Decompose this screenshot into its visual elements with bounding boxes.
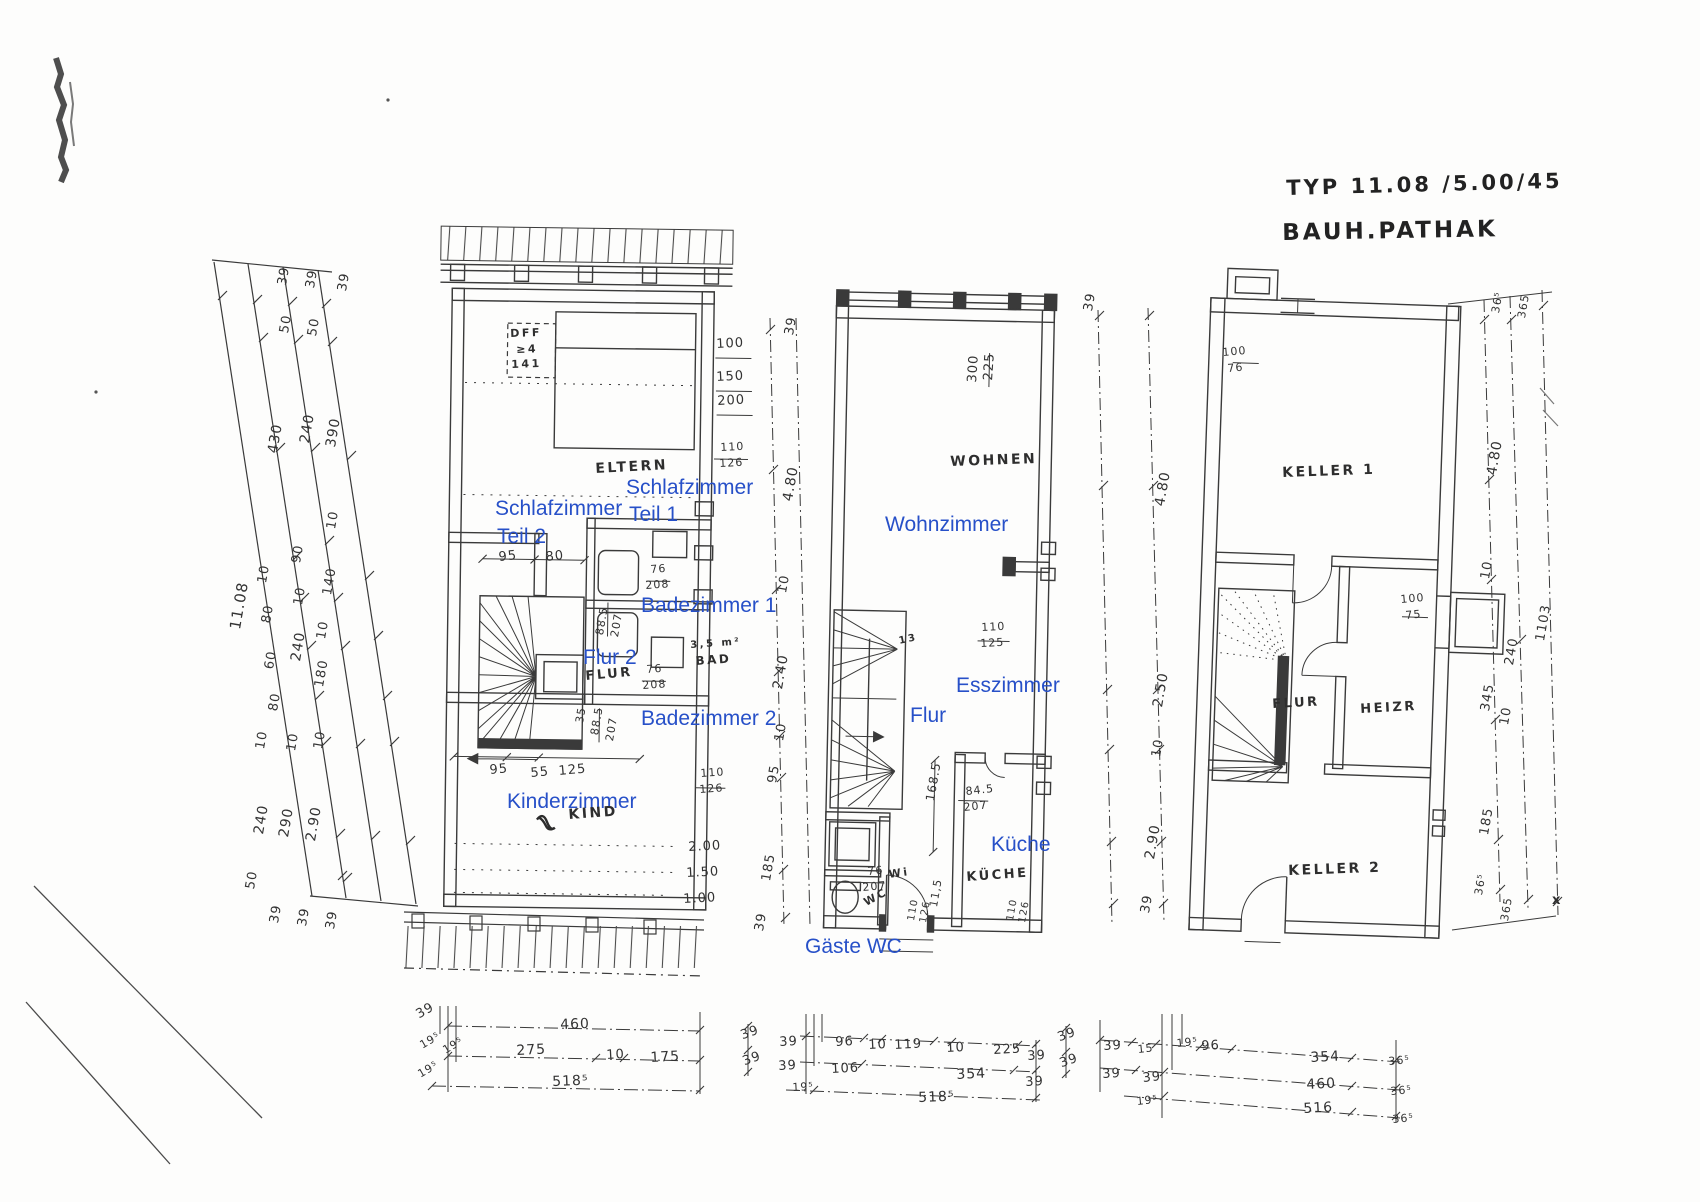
dimension-label: 518⁵ [552, 1074, 589, 1089]
handwritten-label: WOHNEN [950, 452, 1037, 469]
dimension-label: 110 [700, 766, 725, 779]
dimension-label: 76 [1227, 362, 1244, 374]
blue-room-annotation: Schlafzimmer [495, 498, 622, 519]
dimension-label: 10 [254, 730, 270, 751]
dimension-label: 2.50 [1151, 671, 1171, 708]
dimension-label: 365 [1516, 293, 1531, 319]
dimension-label: 150 [716, 370, 744, 384]
handwritten-label: Wi [888, 866, 910, 880]
dimension-label: 84.5 [965, 783, 994, 797]
dimension-label: 168.5 [924, 761, 943, 802]
blue-room-annotation: Badezimmer 1 [641, 595, 776, 616]
dimension-label: 50 [244, 870, 260, 891]
dimension-label: 55 [530, 765, 550, 780]
dimension-label: 39 [276, 266, 292, 287]
dimension-label: 80 [545, 549, 565, 564]
dimension-label: 39 [304, 269, 320, 290]
dimension-label: 110 [981, 621, 1006, 633]
dimension-label: 2.90 [1143, 823, 1163, 860]
dimension-label: 390 [324, 417, 343, 449]
dimension-label: 19⁵ [1176, 1036, 1198, 1049]
dimension-label: 275 [516, 1042, 546, 1058]
handwritten-label: DFF [510, 327, 542, 339]
dimension-label: 39 [779, 1035, 798, 1049]
dimension-label: 76 [650, 563, 667, 575]
dimension-label: 39 [753, 912, 769, 933]
dimension-label: 39 [778, 1059, 797, 1073]
dimension-label: 125 [980, 637, 1005, 649]
dimension-label: 1103 [1534, 603, 1553, 642]
blue-room-annotation: Wohnzimmer [885, 514, 1008, 535]
dimension-label: 11,5 [928, 878, 944, 908]
dimension-label: 290 [277, 807, 296, 839]
dimension-label: 207 [963, 799, 988, 812]
blue-room-annotation: Gäste WC [805, 936, 902, 957]
dimension-label: 39 [1103, 1039, 1122, 1053]
dimension-label: 2.90 [304, 805, 324, 842]
dimension-label: 10 [776, 574, 792, 595]
dimension-label: 126 [719, 457, 744, 469]
dimension-label: 460 [1306, 1076, 1336, 1092]
dimension-label: 4.80 [781, 465, 801, 502]
dimension-label: 39 [783, 316, 799, 337]
dimension-label: 175 [650, 1049, 680, 1065]
blue-room-annotation: Küche [991, 834, 1051, 855]
dimension-label: 345 [1479, 683, 1497, 713]
dimension-label: 95 [498, 549, 518, 564]
dimension-label: 10 [315, 620, 331, 641]
dimension-label: 10 [256, 564, 272, 585]
dimension-label: 95 [766, 764, 782, 785]
dimension-label: 106 [831, 1062, 859, 1076]
dimension-label: 35 [574, 706, 588, 724]
dimension-label: 126 [699, 782, 724, 795]
handwritten-label: 13 [898, 633, 919, 647]
dimension-label: 50 [278, 314, 294, 335]
dimension-label: 10 [606, 1048, 625, 1062]
handwritten-label: KÜCHE [966, 867, 1029, 884]
dimension-label: 39 [1056, 1026, 1078, 1045]
handwritten-label: HEIZR [1360, 700, 1417, 716]
dimension-label: 19⁵ [1136, 1094, 1158, 1107]
dimension-label: 207 [862, 880, 887, 893]
dimension-label: 516 [1303, 1100, 1333, 1116]
dimension-label: 60 [263, 650, 279, 671]
dimension-label: 100 [1400, 592, 1425, 605]
dimension-label: 80 [267, 692, 283, 713]
dimension-label: 39 [1082, 292, 1098, 313]
dimension-label: 140 [321, 567, 339, 597]
dimension-label: 208 [642, 678, 667, 691]
dimension-label: 36⁵ [1473, 873, 1488, 896]
dimension-label: 460 [560, 1017, 590, 1032]
handwritten-label: FLUR [585, 666, 633, 683]
handwritten-label: KELLER 2 [1288, 861, 1382, 878]
dimension-label: 207 [604, 716, 619, 742]
dimension-label: 39 [336, 272, 352, 293]
dimension-label: 39 [296, 907, 312, 928]
dimension-label: 2.40 [771, 653, 791, 690]
dimension-label: 2.00 [688, 839, 722, 854]
dimension-label: 39 [1139, 894, 1155, 915]
dimension-label: 39 [741, 1050, 763, 1069]
dimension-label: 19⁵ [441, 1035, 465, 1055]
dimension-label: 365 [1499, 896, 1514, 922]
dimension-label: 75 [1405, 609, 1422, 621]
blue-room-annotation: Flur [910, 705, 946, 726]
dimension-label: 10 [773, 722, 789, 743]
scanned-floorplan-sheet: TYP 11.08 /5.00/45 BAUH.PATHAK Schlafzim… [0, 0, 1700, 1202]
blue-room-annotation: Esszimmer [956, 675, 1060, 696]
dimension-label: 430 [266, 423, 285, 455]
dimension-label: 10 [1479, 560, 1495, 581]
dimension-label: 10 [325, 510, 341, 531]
dimension-label: 39 [414, 1001, 437, 1022]
dimension-label: 36⁵ [1490, 291, 1505, 314]
handwritten-label: KIND [568, 805, 618, 822]
dimension-label: 100 [716, 337, 744, 351]
dimension-label: 50 [306, 317, 322, 338]
dimension-label: 354 [1310, 1049, 1340, 1065]
dimension-label: 11.08 [228, 581, 251, 631]
dimension-label: 354 [956, 1066, 986, 1082]
dimension-label: 36⁵ [1390, 1084, 1412, 1097]
dimension-label: 39 [324, 910, 340, 931]
dimension-label: 185 [760, 853, 778, 883]
handwritten-label: FLUR [1272, 696, 1320, 711]
dimension-label: 96 [1201, 1039, 1220, 1053]
dimension-label: 76 [646, 663, 663, 675]
dimension-label: 225 [982, 352, 997, 381]
dimension-label: 19⁵ [792, 1081, 814, 1093]
dimension-label: 225 [993, 1043, 1021, 1057]
dimension-label: 240 [298, 413, 317, 445]
dimension-label: 125 [558, 763, 587, 778]
dimension-label: 88.5 [589, 706, 605, 736]
handwritten-label: ≥4 [516, 343, 538, 355]
dimension-label: 185 [1478, 807, 1496, 837]
dimension-label: 1.00 [683, 891, 717, 906]
handwritten-label: KELLER 1 [1282, 463, 1376, 480]
dimension-label: 10 [1498, 706, 1514, 727]
dimension-label: 19⁵ [416, 1059, 440, 1079]
dimension-label: 39 [1025, 1075, 1044, 1089]
blue-room-annotation: Teil 2 [497, 526, 546, 547]
dimension-label: 1.50 [686, 865, 720, 880]
handwritten-label: BAD [695, 652, 732, 666]
handwritten-label: x [1552, 894, 1563, 907]
dimension-label: 4.80 [1485, 439, 1505, 476]
dimension-label: 518⁵ [918, 1090, 955, 1105]
dimension-label: 80 [260, 604, 276, 625]
blue-room-annotation: Teil 1 [629, 504, 678, 525]
dimension-label: 10 [868, 1038, 887, 1052]
dimension-label: 200 [717, 394, 745, 408]
dimension-label: 10 [292, 586, 308, 607]
dimension-label: 207 [609, 612, 624, 638]
dimension-label: 19⁵ [418, 1030, 442, 1050]
dimension-label: 300 [966, 354, 981, 383]
dimension-label: 76 [867, 865, 884, 877]
dimension-label: 208 [645, 578, 670, 591]
blue-room-annotation: Schlafzimmer [626, 477, 753, 498]
dimension-label: 10 [1150, 738, 1166, 759]
dimension-label: 39 [1027, 1049, 1046, 1063]
dimension-label: 119 [894, 1038, 922, 1052]
dimension-label: 36⁵ [1392, 1112, 1414, 1125]
dimension-label: 15 [1137, 1042, 1154, 1055]
blue-room-annotation: Badezimmer 2 [641, 708, 776, 729]
dimension-label: 39 [1102, 1067, 1121, 1081]
dimension-label: 39 [268, 904, 284, 925]
dimension-label: 95 [489, 762, 509, 777]
dimension-label: 36⁵ [1388, 1054, 1410, 1067]
handwritten-label: ELTERN [595, 458, 668, 476]
dimension-label: 240 [252, 804, 271, 836]
dimension-label: 240 [1503, 637, 1521, 667]
dimension-label: 4.80 [1153, 470, 1173, 507]
dimension-label: 39 [1058, 1052, 1080, 1071]
annotation-layer: SchlafzimmerTeil 1SchlafzimmerTeil 2Bade… [0, 0, 1700, 1202]
dimension-label: 180 [313, 659, 331, 689]
dimension-label: 96 [835, 1035, 854, 1049]
dimension-label: 110 [720, 441, 745, 453]
dimension-label: 100 [1222, 345, 1247, 358]
dimension-label: 90 [290, 544, 306, 565]
dimension-label: 88.5 [594, 606, 610, 636]
dimension-label: 10 [285, 732, 301, 753]
dimension-label: 10 [946, 1041, 965, 1055]
dimension-label: 10 [312, 730, 328, 751]
dimension-label: 240 [289, 631, 308, 663]
handwritten-label: 141 [511, 358, 542, 370]
dimension-label: 39 [1142, 1070, 1162, 1085]
dimension-label: 126 [1018, 900, 1032, 923]
dimension-label: 39 [739, 1024, 761, 1043]
handwritten-label: 3,5 m² [690, 637, 742, 651]
